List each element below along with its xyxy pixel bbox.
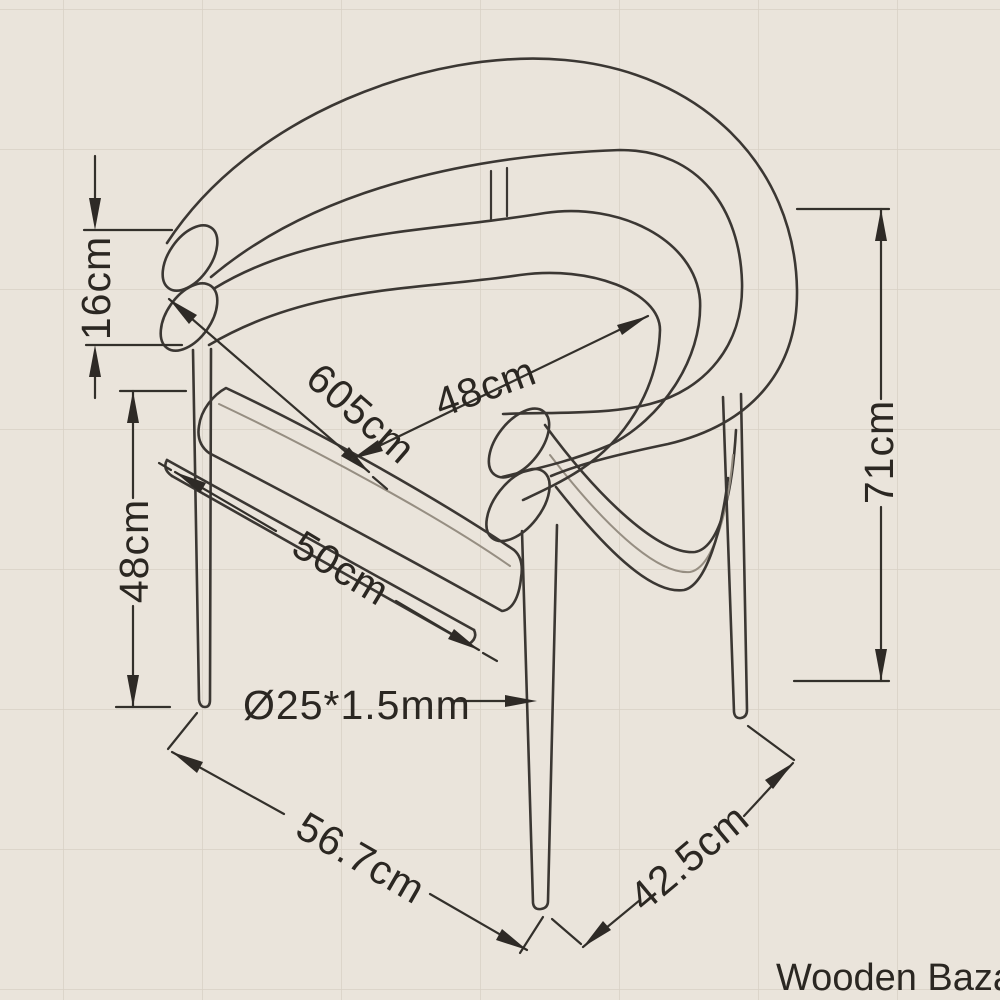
brand-watermark: Wooden Bazar: [776, 957, 1000, 999]
technical-drawing: 16cm 48cm 71cm 605cm 48cm: [0, 0, 1000, 1000]
tube-spec-label: Ø25*1.5mm: [243, 682, 471, 728]
seat-height-label: 48cm: [111, 499, 157, 603]
back-tube-height-label: 16cm: [73, 236, 119, 340]
chair-dimension-figure: 16cm 48cm 71cm 605cm 48cm: [0, 0, 1000, 1000]
overall-height-label: 71cm: [856, 400, 902, 504]
